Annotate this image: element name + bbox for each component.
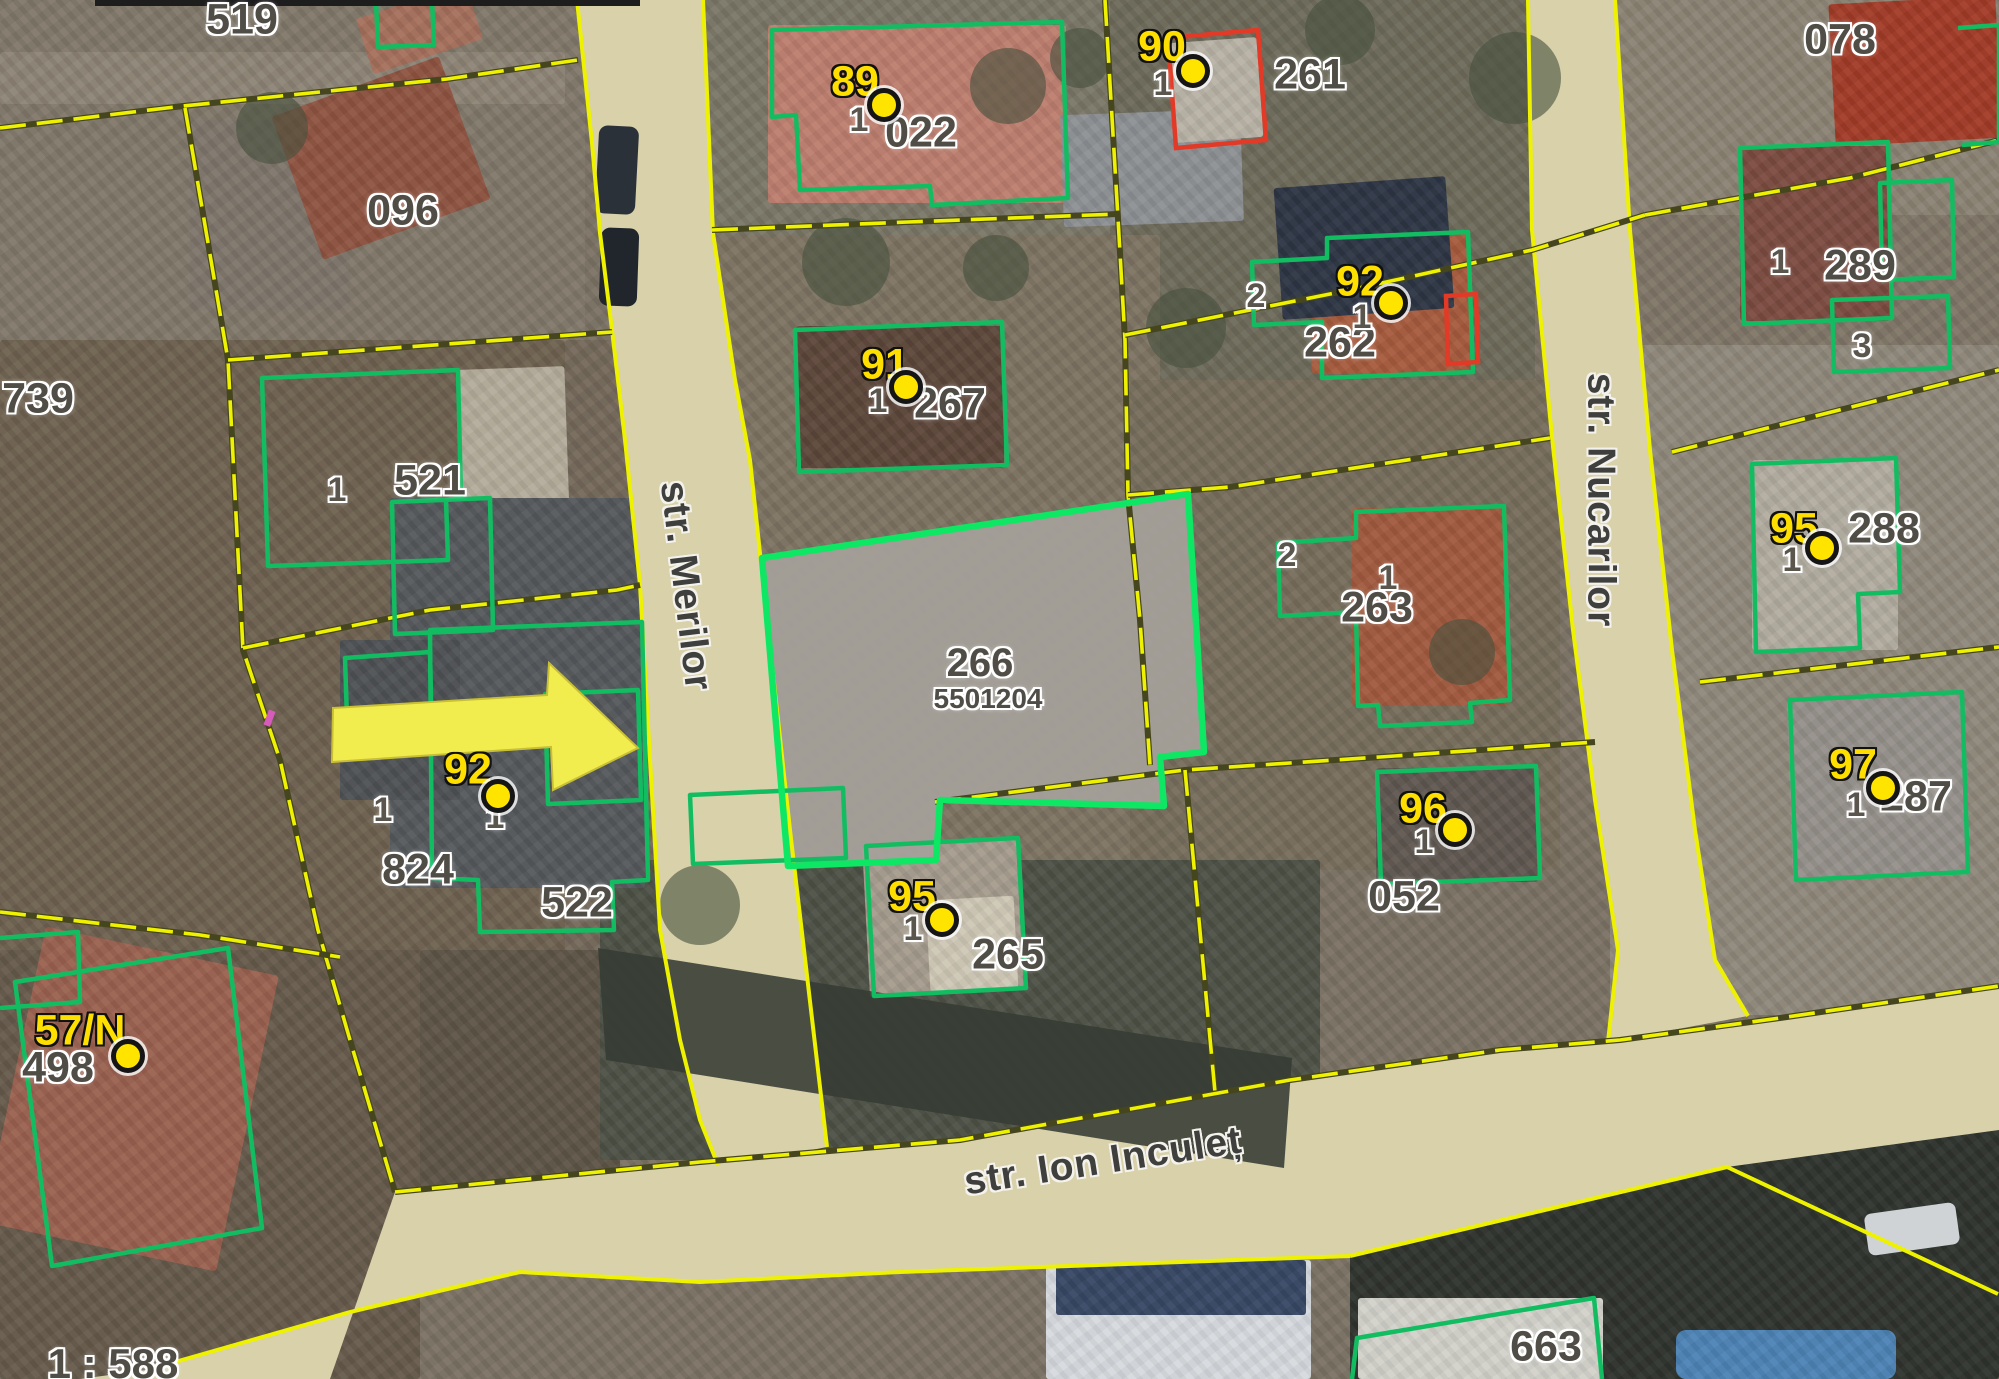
building-unit-label: 1 xyxy=(1154,67,1173,101)
map-labels-layer: 266 5501204 1 : 588 51909673902226107826… xyxy=(0,0,1999,1379)
selected-parcel-code: 5501204 xyxy=(933,685,1042,713)
parcel-label[interactable]: 096 xyxy=(367,190,439,233)
building-unit-label: 1 xyxy=(374,793,393,827)
parcel-label[interactable]: 521 xyxy=(394,460,466,503)
building-unit-label: 2 xyxy=(1247,279,1266,313)
marker-dot[interactable] xyxy=(1438,813,1472,847)
marker-dot[interactable] xyxy=(1805,531,1839,565)
parcel-label[interactable]: 261 xyxy=(1274,54,1346,97)
street-label: str. Nucarilor xyxy=(1582,373,1621,628)
building-unit-label: 3 xyxy=(1853,329,1872,363)
parcel-label[interactable]: 078 xyxy=(1804,19,1876,62)
selected-parcel-label[interactable]: 266 5501204 xyxy=(917,643,1042,713)
parcel-label[interactable]: 263 xyxy=(1341,587,1413,630)
parcel-label[interactable]: 052 xyxy=(1368,876,1440,919)
building-unit-label: 1 xyxy=(1379,561,1398,595)
marker-dot[interactable] xyxy=(889,370,923,404)
street-label: str. Ion Inculeț xyxy=(961,1121,1244,1202)
parcel-label[interactable]: 519 xyxy=(206,0,278,42)
street-label: str. Merilor xyxy=(654,479,718,694)
building-unit-label: 1 xyxy=(869,384,888,418)
parcel-label[interactable]: 289 xyxy=(1824,245,1896,288)
marker-dot[interactable] xyxy=(1176,54,1210,88)
marker-dot[interactable] xyxy=(481,779,515,813)
marker-dot[interactable] xyxy=(867,88,901,122)
marker-dot[interactable] xyxy=(925,903,959,937)
marker-dot[interactable] xyxy=(1374,286,1408,320)
marker-dot[interactable] xyxy=(111,1039,145,1073)
parcel-label[interactable]: 522 xyxy=(541,882,613,925)
marker-number[interactable]: 57/N xyxy=(35,1010,126,1053)
selected-parcel-number: 266 xyxy=(917,643,1042,683)
parcel-label[interactable]: 265 xyxy=(972,934,1044,977)
parcel-label[interactable]: 022 xyxy=(885,112,957,155)
parcel-label[interactable]: 267 xyxy=(914,383,986,426)
parcel-label[interactable]: 739 xyxy=(2,378,74,421)
building-unit-label: 2 xyxy=(1278,538,1297,572)
marker-dot[interactable] xyxy=(1866,771,1900,805)
map-canvas[interactable]: 266 5501204 1 : 588 51909673902226107826… xyxy=(0,0,1999,1379)
parcel-label[interactable]: 824 xyxy=(382,849,454,892)
scale-label: 1 : 588 xyxy=(48,1343,179,1379)
building-unit-label: 1 xyxy=(1771,245,1790,279)
building-unit-label: 1 xyxy=(850,103,869,137)
building-unit-label: 1 xyxy=(328,473,347,507)
building-unit-label: 1 xyxy=(1847,788,1866,822)
parcel-label[interactable]: 663 xyxy=(1510,1326,1582,1369)
parcel-label[interactable]: 288 xyxy=(1848,508,1920,551)
